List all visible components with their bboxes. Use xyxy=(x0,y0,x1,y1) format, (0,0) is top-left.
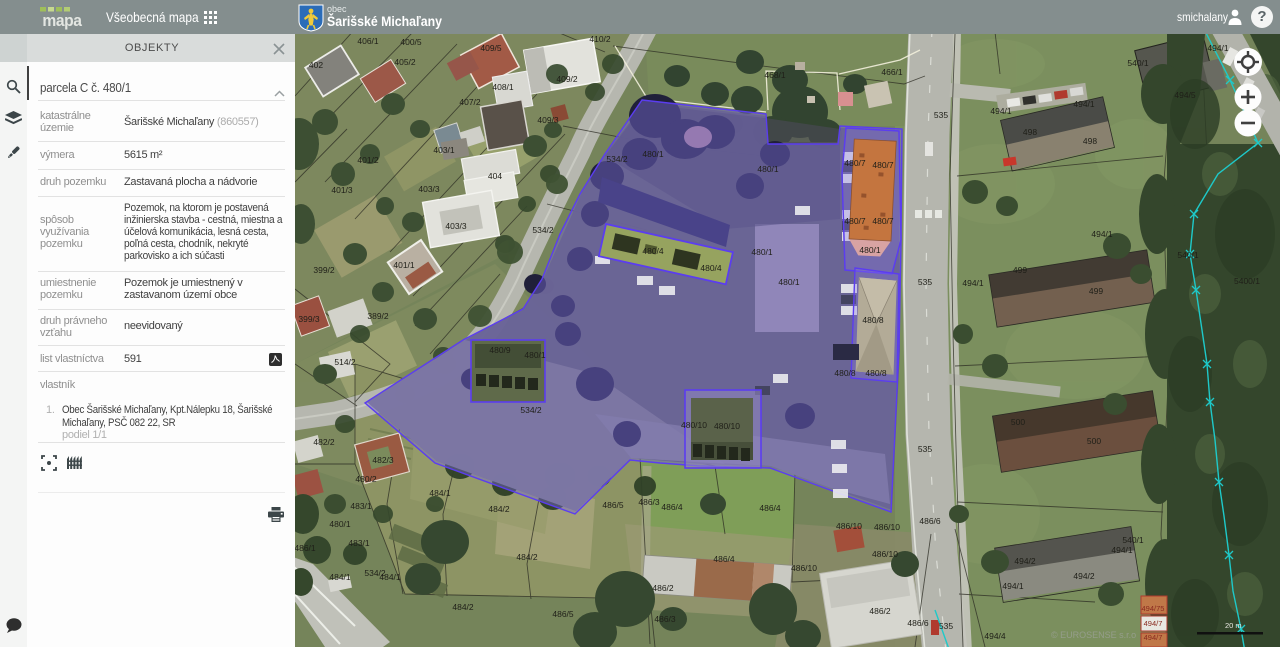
svg-text:486/5: 486/5 xyxy=(602,500,624,510)
svg-text:480/7: 480/7 xyxy=(844,158,866,168)
svg-text:483/1: 483/1 xyxy=(350,501,372,511)
svg-text:494/5: 494/5 xyxy=(1174,90,1196,100)
svg-text:480/1: 480/1 xyxy=(751,247,773,257)
svg-text:540/1: 540/1 xyxy=(1127,58,1149,68)
svg-text:20 m: 20 m xyxy=(1225,621,1242,630)
svg-text:494/2: 494/2 xyxy=(1073,571,1095,581)
svg-text:486/5: 486/5 xyxy=(552,609,574,619)
svg-text:401/2: 401/2 xyxy=(357,155,379,165)
svg-text:494/1: 494/1 xyxy=(962,278,984,288)
svg-text:480/1: 480/1 xyxy=(329,519,351,529)
svg-text:499: 499 xyxy=(1089,286,1103,296)
svg-text:408/1: 408/1 xyxy=(492,82,514,92)
svg-text:534/2: 534/2 xyxy=(532,225,554,235)
svg-text:5400/1: 5400/1 xyxy=(1234,276,1260,286)
svg-text:482/2: 482/2 xyxy=(313,437,335,447)
svg-text:486/10: 486/10 xyxy=(874,522,900,532)
svg-text:399/2: 399/2 xyxy=(313,265,335,275)
svg-text:480/2: 480/2 xyxy=(355,474,377,484)
svg-text:480/4: 480/4 xyxy=(642,246,664,256)
svg-text:486/4: 486/4 xyxy=(713,554,735,564)
svg-text:486/2: 486/2 xyxy=(652,583,674,593)
svg-text:401/1: 401/1 xyxy=(393,260,415,270)
svg-text:486/4: 486/4 xyxy=(759,503,781,513)
svg-text:486/10: 486/10 xyxy=(872,549,898,559)
svg-text:498: 498 xyxy=(1083,136,1097,146)
svg-text:480/8: 480/8 xyxy=(865,368,887,378)
svg-text:410/2: 410/2 xyxy=(589,34,611,44)
svg-text:500: 500 xyxy=(1011,417,1025,427)
svg-text:540/1: 540/1 xyxy=(1177,250,1199,260)
svg-text:400/5: 400/5 xyxy=(400,37,422,47)
svg-text:486/6: 486/6 xyxy=(919,516,941,526)
svg-text:389/2: 389/2 xyxy=(367,311,389,321)
svg-text:486/10: 486/10 xyxy=(791,563,817,573)
svg-text:409/3: 409/3 xyxy=(537,115,559,125)
svg-text:399/3: 399/3 xyxy=(298,314,320,324)
svg-text:© EUROSENSE s.r.o: © EUROSENSE s.r.o xyxy=(1051,630,1136,640)
svg-text:404: 404 xyxy=(488,171,502,181)
svg-text:486/1: 486/1 xyxy=(295,543,316,553)
svg-text:480/7: 480/7 xyxy=(844,216,866,226)
svg-text:mapa: mapa xyxy=(42,11,82,30)
svg-text:480/1: 480/1 xyxy=(642,149,664,159)
svg-text:486/4: 486/4 xyxy=(661,502,683,512)
svg-text:494/1: 494/1 xyxy=(1207,43,1229,53)
svg-text:535: 535 xyxy=(939,621,953,631)
svg-text:486/6: 486/6 xyxy=(907,618,929,628)
svg-text:403/3: 403/3 xyxy=(418,184,440,194)
svg-text:403/1: 403/1 xyxy=(433,145,455,155)
svg-text:480/9: 480/9 xyxy=(489,345,511,355)
svg-text:480/8: 480/8 xyxy=(862,315,884,325)
svg-text:494/75: 494/75 xyxy=(1142,604,1165,613)
svg-text:409/2: 409/2 xyxy=(556,74,578,84)
svg-text:468/1: 468/1 xyxy=(764,70,786,80)
svg-text:480/8: 480/8 xyxy=(834,368,856,378)
svg-text:494/2: 494/2 xyxy=(1014,556,1036,566)
svg-text:494/4: 494/4 xyxy=(984,631,1006,641)
svg-text:494/1: 494/1 xyxy=(1073,99,1095,109)
svg-text:486/3: 486/3 xyxy=(638,497,660,507)
svg-text:484/1: 484/1 xyxy=(329,572,351,582)
svg-text:486/2: 486/2 xyxy=(869,606,891,616)
svg-text:484/2: 484/2 xyxy=(488,504,510,514)
svg-text:514/2: 514/2 xyxy=(334,357,356,367)
svg-text:480/1: 480/1 xyxy=(524,350,546,360)
svg-text:494/1: 494/1 xyxy=(1002,581,1024,591)
svg-text:500: 500 xyxy=(1087,436,1101,446)
svg-text:484/2: 484/2 xyxy=(516,552,538,562)
svg-text:534/2: 534/2 xyxy=(606,154,628,164)
svg-text:406/1: 406/1 xyxy=(357,36,379,46)
svg-text:484/1: 484/1 xyxy=(379,572,401,582)
svg-text:486/10: 486/10 xyxy=(836,521,862,531)
svg-text:484/1: 484/1 xyxy=(429,488,451,498)
svg-text:494/7: 494/7 xyxy=(1144,633,1163,642)
svg-text:535: 535 xyxy=(918,277,932,287)
svg-text:403/3: 403/3 xyxy=(445,221,467,231)
svg-text:540/1: 540/1 xyxy=(1122,535,1144,545)
svg-text:480/7: 480/7 xyxy=(872,160,894,170)
svg-text:402: 402 xyxy=(309,60,323,70)
svg-text:534/2: 534/2 xyxy=(520,405,542,415)
svg-text:409/5: 409/5 xyxy=(480,43,502,53)
svg-text:480/1: 480/1 xyxy=(859,245,881,255)
svg-text:407/2: 407/2 xyxy=(459,97,481,107)
svg-text:480/4: 480/4 xyxy=(700,263,722,273)
svg-text:480/7: 480/7 xyxy=(872,216,894,226)
svg-text:405/2: 405/2 xyxy=(394,57,416,67)
svg-text:499: 499 xyxy=(1013,265,1027,275)
svg-text:535: 535 xyxy=(918,444,932,454)
svg-text:483/1: 483/1 xyxy=(348,538,370,548)
svg-text:480/10: 480/10 xyxy=(681,420,707,430)
svg-text:494/1: 494/1 xyxy=(1091,229,1113,239)
svg-text:466/1: 466/1 xyxy=(881,67,903,77)
svg-text:401/3: 401/3 xyxy=(331,185,353,195)
svg-text:480/10: 480/10 xyxy=(714,421,740,431)
svg-text:494/1: 494/1 xyxy=(990,106,1012,116)
svg-text:484/2: 484/2 xyxy=(452,602,474,612)
svg-text:482/3: 482/3 xyxy=(372,455,394,465)
svg-text:535: 535 xyxy=(934,110,948,120)
svg-text:480/1: 480/1 xyxy=(757,164,779,174)
svg-text:480/1: 480/1 xyxy=(778,277,800,287)
svg-text:498: 498 xyxy=(1023,127,1037,137)
svg-text:486/3: 486/3 xyxy=(654,614,676,624)
svg-text:494/7: 494/7 xyxy=(1144,619,1163,628)
svg-text:494/1: 494/1 xyxy=(1111,545,1133,555)
